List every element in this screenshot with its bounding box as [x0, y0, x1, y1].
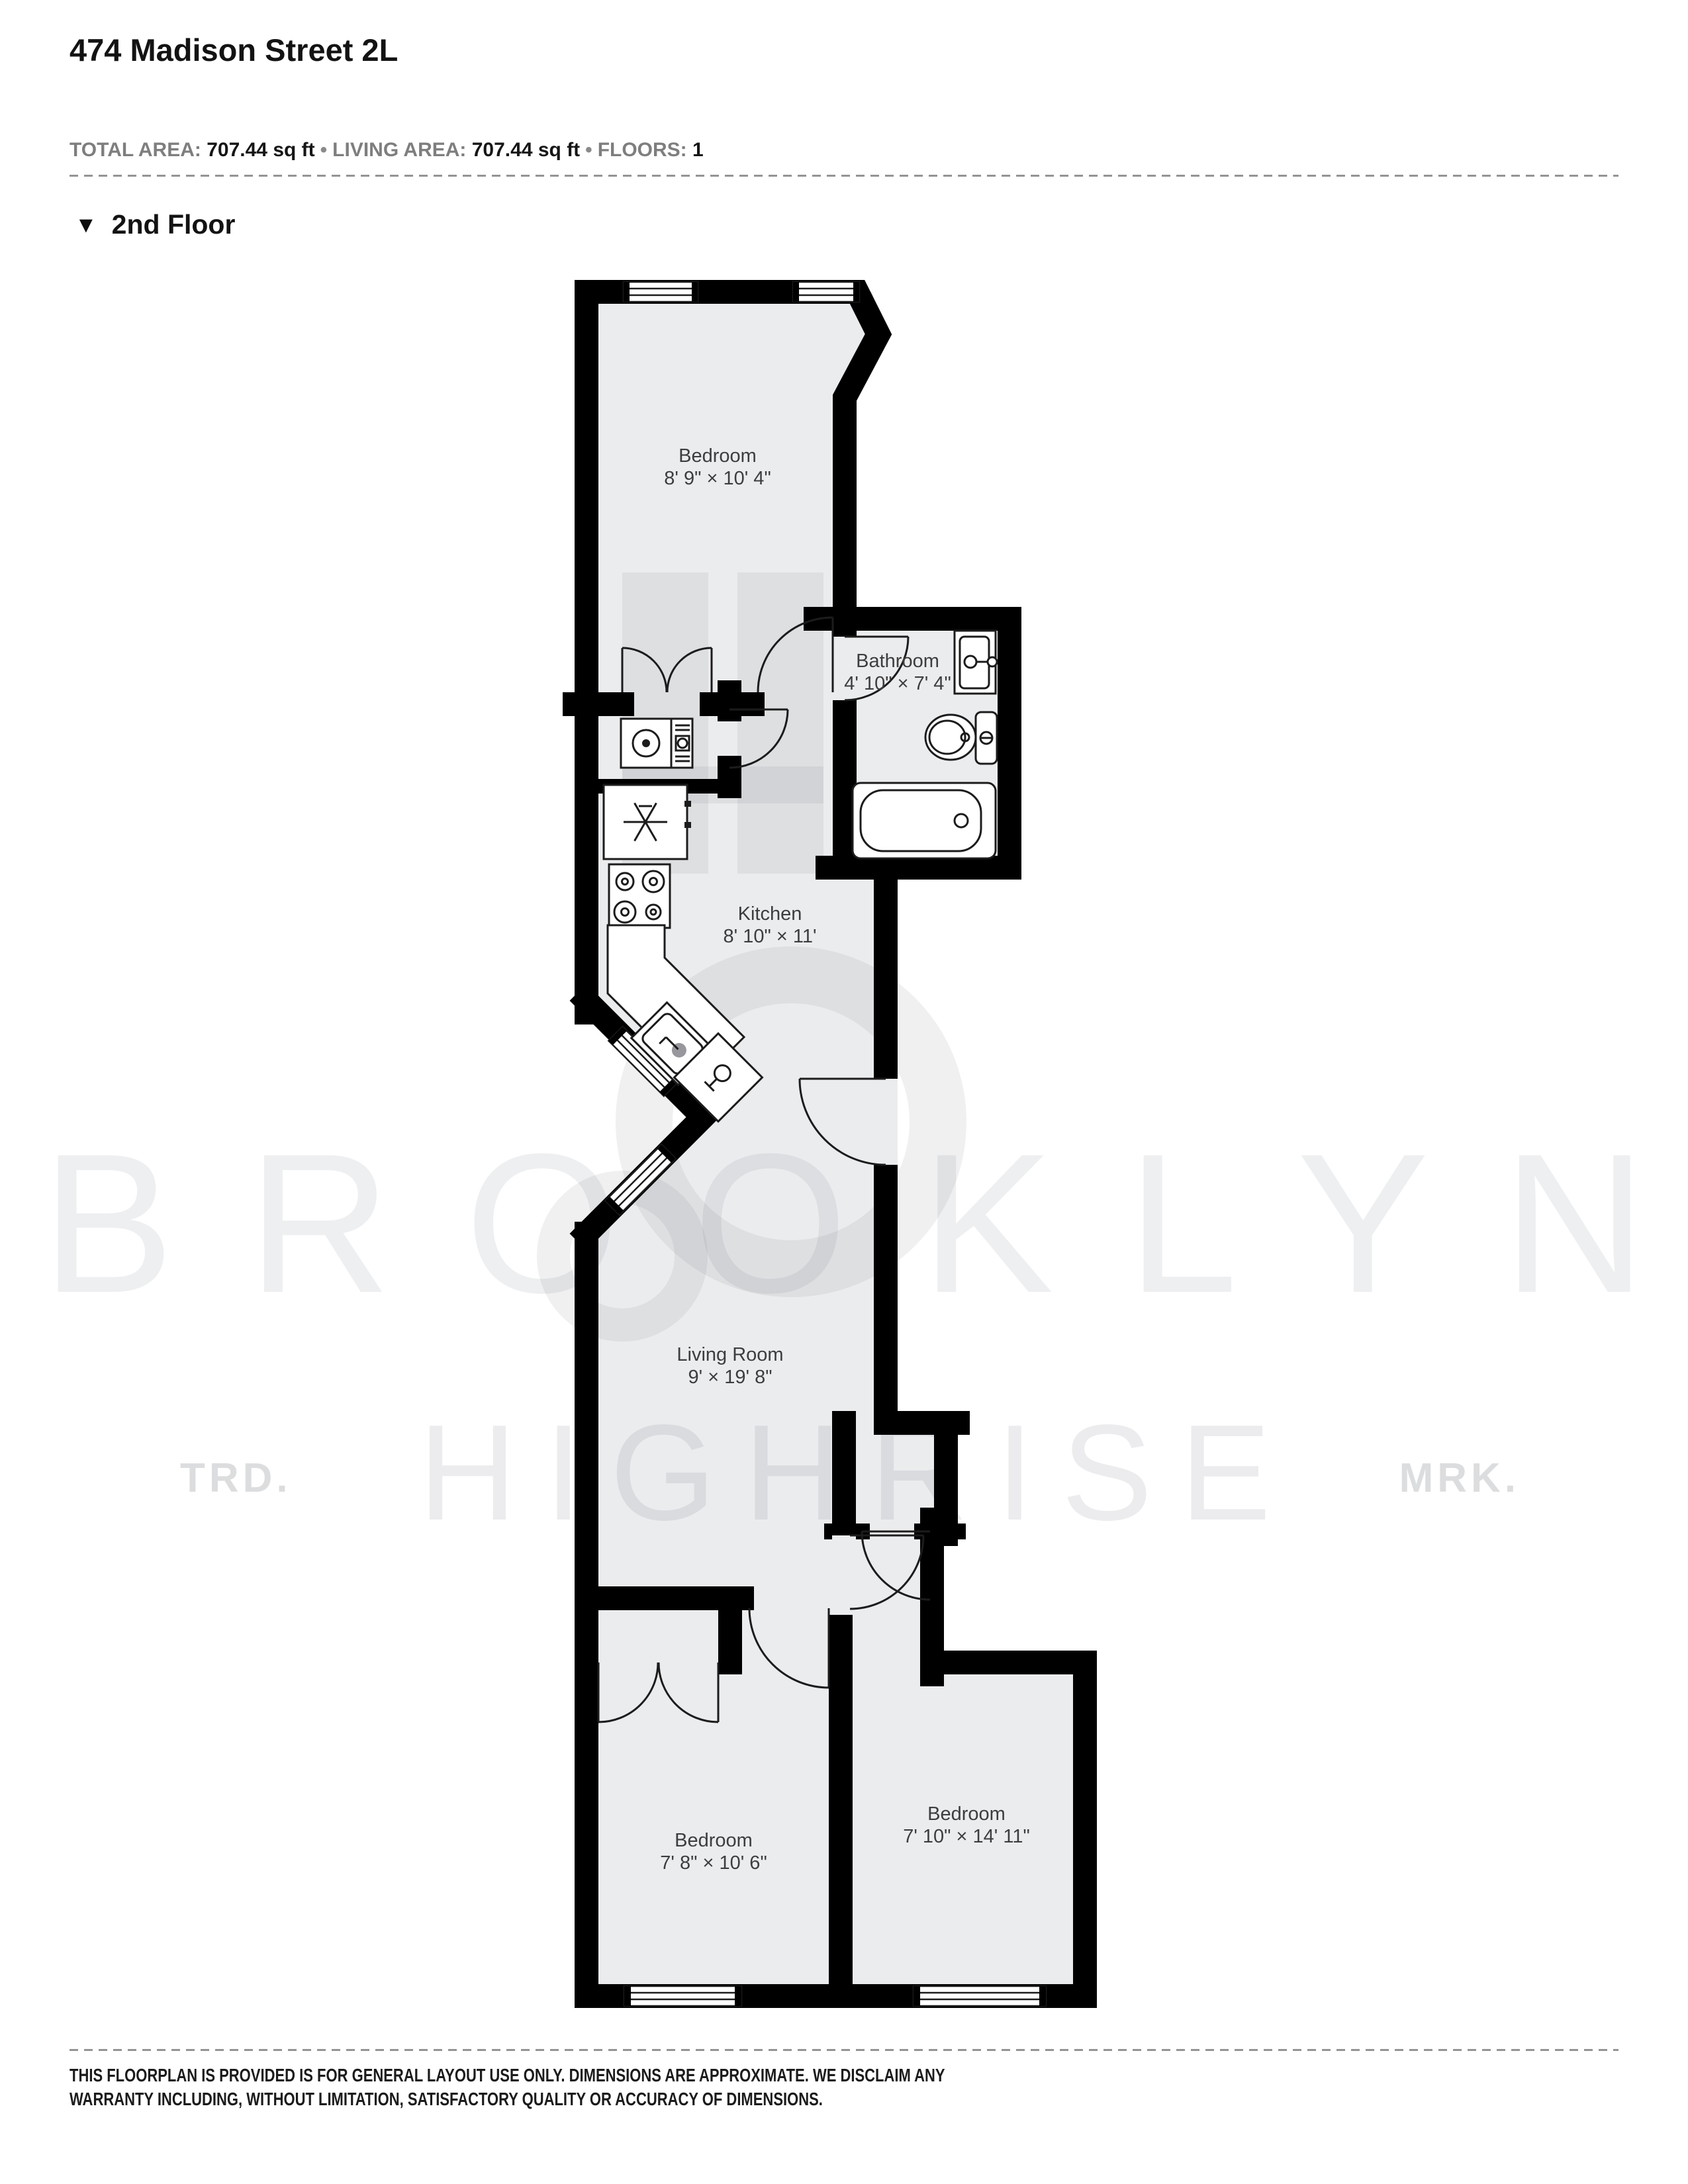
washer-dryer-icon: [621, 719, 692, 768]
disclaimer-line-1: THIS FLOORPLAN IS PROVIDED IS FOR GENERA…: [70, 2064, 945, 2087]
room-dimensions: 7' 10" × 14' 11": [903, 1826, 1030, 1847]
floorplan-page: 474 Madison Street 2L TOTAL AREA: 707.44…: [0, 0, 1688, 2184]
bathroom-sink-icon: [955, 631, 997, 694]
window: [624, 282, 698, 302]
watermark-mrk: MRK.: [1399, 1455, 1520, 1501]
window: [624, 1986, 741, 2006]
room-dimensions: 8' 10" × 11': [724, 926, 817, 947]
room-label: Bedroom: [675, 1830, 753, 1851]
room-label: Living Room: [677, 1344, 783, 1365]
footer-disclaimer: THIS FLOORPLAN IS PROVIDED IS FOR GENERA…: [70, 2064, 945, 2111]
footer-divider: [70, 2049, 1618, 2051]
window: [914, 1986, 1046, 2006]
room-label: Bathroom: [856, 651, 939, 672]
room-label: Bedroom: [927, 1803, 1006, 1825]
window: [793, 282, 859, 302]
room-dimensions: 8' 9" × 10' 4": [664, 468, 771, 489]
watermark-trd: TRD.: [180, 1455, 292, 1501]
room-label: Kitchen: [738, 903, 802, 925]
room-label: Bedroom: [679, 445, 757, 467]
room-dimensions: 9' × 19' 8": [688, 1367, 773, 1388]
bathtub-icon: [853, 783, 996, 858]
disclaimer-line-2: WARRANTY INCLUDING, WITHOUT LIMITATION, …: [70, 2087, 945, 2111]
floorplan-drawing: BROOKLYN HIGHRISE TRD. MRK.: [0, 0, 1688, 2184]
room-dimensions: 7' 8" × 10' 6": [660, 1852, 767, 1874]
watermark-brooklyn: BROOKLYN: [42, 1112, 1646, 1334]
stove-icon: [609, 864, 670, 928]
toilet-icon: [925, 712, 997, 764]
room-dimensions: 4' 10" × 7' 4": [844, 673, 951, 694]
refrigerator-icon: [604, 785, 691, 859]
